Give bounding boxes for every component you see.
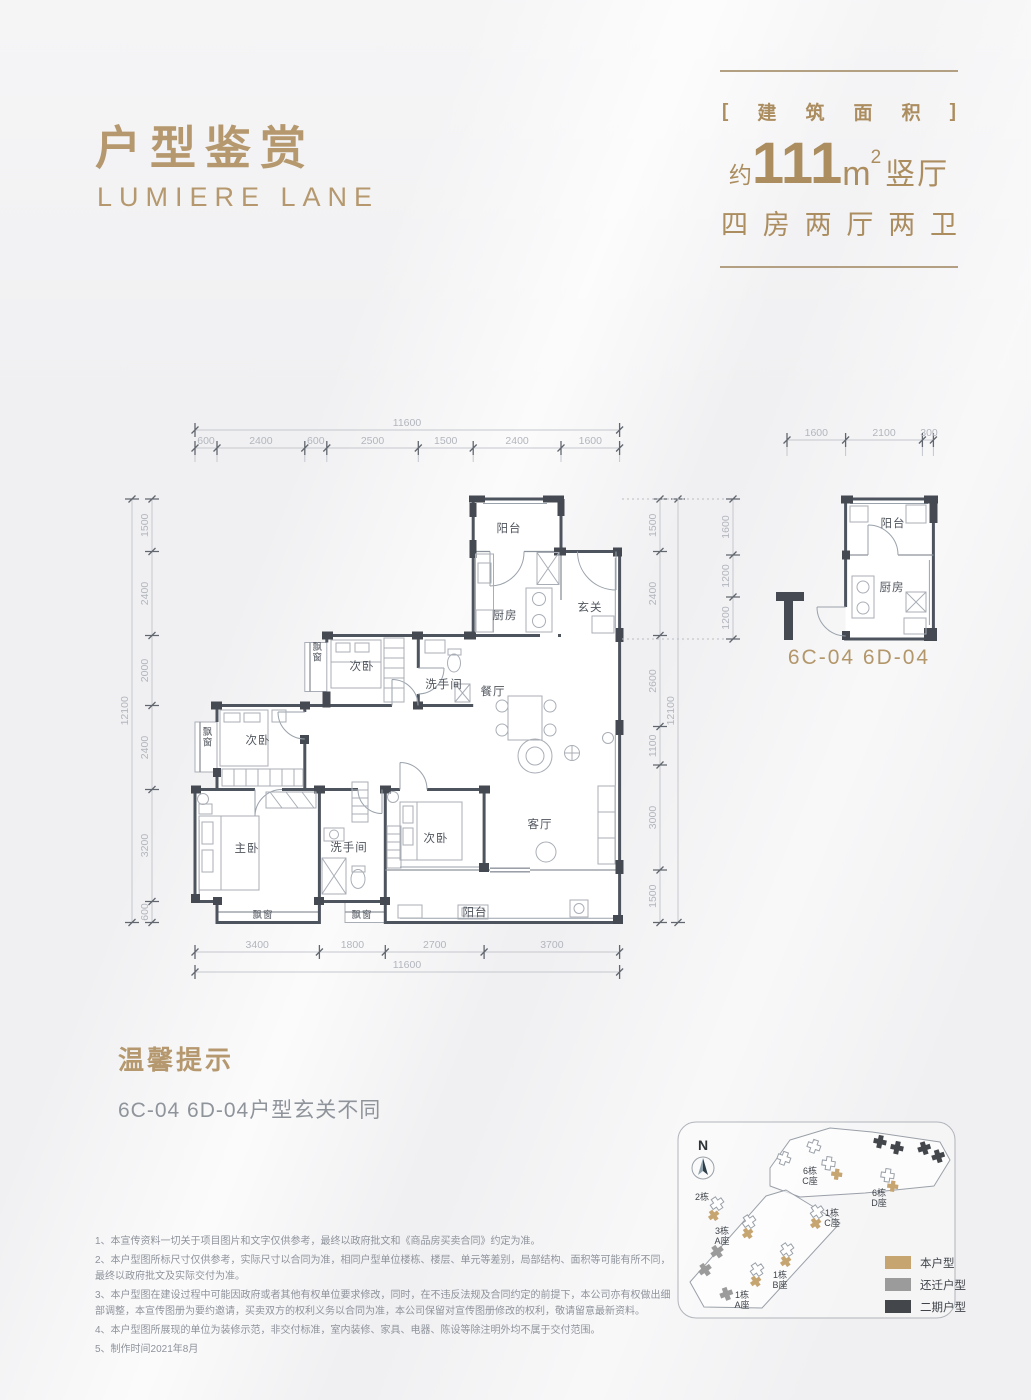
svg-text:2400: 2400 (647, 582, 659, 606)
room-label: 次卧 (424, 831, 449, 845)
room-label: 阳台 (497, 521, 522, 535)
svg-text:2600: 2600 (647, 669, 659, 693)
svg-text:1200: 1200 (720, 606, 732, 630)
svg-text:2400: 2400 (139, 736, 151, 760)
building-label: 1栋 (825, 1207, 839, 1218)
tips-body: 6C-04 6D-04户型玄关不同 (118, 1094, 381, 1124)
room-label: 餐厅 (481, 684, 506, 698)
small-plan-caption: 6C-04 6D-04 (788, 646, 930, 669)
info-top-rule (720, 70, 958, 72)
note-line: 1、本宣传资料一切关于项目图片和文字仅供参考，最终以政府批文和《商品房买卖合同》… (95, 1234, 677, 1250)
tips-title: 温馨提示 (118, 1040, 234, 1077)
legend-swatch (885, 1256, 911, 1269)
building-label: B座 (772, 1279, 787, 1290)
note-line: 4、本户型图所展现的单位为装修示范，非交付标准，室内装修、家具、电器、陈设等除注… (95, 1323, 677, 1339)
room-label: 阳台 (463, 905, 488, 919)
room-label: 飘窗 (252, 909, 273, 921)
building-label: 6栋 (872, 1187, 886, 1198)
svg-text:600: 600 (307, 435, 325, 447)
main-floorplan: 阳台 厨房 玄关 次卧 飘窗 洗手间 餐厅 次卧 飘窗 主卧 洗手间 次卧 客厅… (100, 400, 980, 1010)
room-label: 厨房 (880, 581, 905, 594)
room-label: 客厅 (528, 817, 553, 831)
svg-text:1100: 1100 (647, 734, 659, 757)
legend-label: 本户型 (920, 1256, 955, 1270)
room-label: 洗手间 (425, 677, 463, 691)
svg-text:2400: 2400 (249, 435, 273, 447)
svg-text:3700: 3700 (540, 939, 564, 951)
svg-text:1500: 1500 (139, 513, 151, 537)
building-label: C座 (824, 1217, 840, 1228)
svg-text:2700: 2700 (423, 939, 447, 951)
note-line: 5、制作时间2021年8月 (95, 1342, 677, 1358)
layout-label: 四 房 两 厅 两 卫 (721, 203, 957, 242)
note-line: 2、本户型图所标尺寸仅供参考，实际尺寸以合同为准，相同户型单位楼栋、楼层、单元等… (95, 1253, 677, 1285)
page-subtitle: LUMIERE LANE (97, 182, 379, 213)
svg-text:11600: 11600 (393, 417, 422, 429)
svg-text:2000: 2000 (139, 659, 151, 683)
svg-text:300: 300 (920, 427, 938, 439)
svg-text:2500: 2500 (361, 435, 385, 447)
building-label: 1栋 (773, 1269, 787, 1280)
map-legend: 本户型 还迁户型 二期户型 (885, 1256, 966, 1314)
svg-text:1200: 1200 (720, 564, 732, 588)
svg-text:2400: 2400 (505, 435, 529, 447)
area-info-block: [ 建 筑 面 积 ] 约 111 m 2 竖厅 四 房 两 厅 两 卫 (720, 70, 958, 268)
building-label: C座 (802, 1175, 818, 1186)
building-label: D座 (871, 1197, 887, 1208)
svg-text:12100: 12100 (665, 696, 677, 725)
room-label: 次卧 (246, 733, 271, 747)
svg-text:3200: 3200 (139, 834, 151, 858)
svg-text:1500: 1500 (434, 435, 458, 447)
svg-text:1600: 1600 (579, 435, 603, 447)
building-area-label: [ 建 筑 面 积 ] (722, 98, 956, 125)
bracket-open: [ (722, 101, 728, 123)
svg-text:600: 600 (139, 903, 151, 921)
disclaimer-notes: 1、本宣传资料一切关于项目图片和文字仅供参考，最终以政府批文和《商品房买卖合同》… (95, 1234, 677, 1361)
room-label: 阳台 (881, 516, 906, 530)
svg-text:1600: 1600 (805, 427, 829, 439)
building-label: A座 (714, 1235, 729, 1246)
note-line: 3、本户型图在建设过程中可能因政府或者其他有权单位要求修改，同时，在不违反法规及… (95, 1288, 677, 1320)
svg-text:600: 600 (197, 435, 215, 447)
site-map: 6栋 C座 6栋 D座 2栋 1栋 C座 3栋 A座 1栋 B座 1栋 A座 N… (660, 1110, 980, 1340)
room-label: 飘窗 (310, 642, 322, 663)
building-label: A座 (734, 1299, 749, 1310)
svg-text:1500: 1500 (647, 884, 659, 908)
area-value: 约 111 m 2 竖厅 (720, 135, 958, 193)
svg-text:12100: 12100 (119, 696, 131, 725)
legend-swatch (885, 1278, 911, 1291)
legend-swatch (885, 1300, 911, 1313)
north-label: N (698, 1137, 708, 1153)
page-title: 户型鉴赏 (95, 112, 315, 178)
room-label: 玄关 (578, 600, 603, 614)
room-label: 厨房 (493, 609, 518, 622)
bracket-close: ] (950, 101, 956, 123)
info-bottom-rule (720, 266, 958, 268)
area-number: 111 (752, 135, 842, 193)
svg-text:11600: 11600 (393, 959, 422, 971)
room-label: 主卧 (235, 842, 260, 855)
room-label: 次卧 (350, 659, 375, 673)
legend-label: 还迁户型 (920, 1278, 966, 1292)
building-label: 1栋 (735, 1289, 749, 1300)
svg-text:1800: 1800 (341, 939, 365, 951)
room-label: 洗手间 (330, 840, 368, 854)
room-label: 飘窗 (351, 909, 372, 921)
svg-text:3000: 3000 (647, 806, 659, 830)
svg-text:1500: 1500 (647, 513, 659, 537)
building-label: 6栋 (803, 1165, 817, 1176)
building-label: 3栋 (715, 1225, 729, 1236)
room-label: 飘窗 (201, 727, 213, 748)
svg-text:2100: 2100 (872, 427, 896, 439)
svg-text:2400: 2400 (139, 582, 151, 606)
svg-text:1600: 1600 (720, 515, 732, 539)
building-label: 2栋 (695, 1191, 709, 1202)
legend-label: 二期户型 (920, 1300, 966, 1314)
svg-text:3400: 3400 (246, 939, 270, 951)
